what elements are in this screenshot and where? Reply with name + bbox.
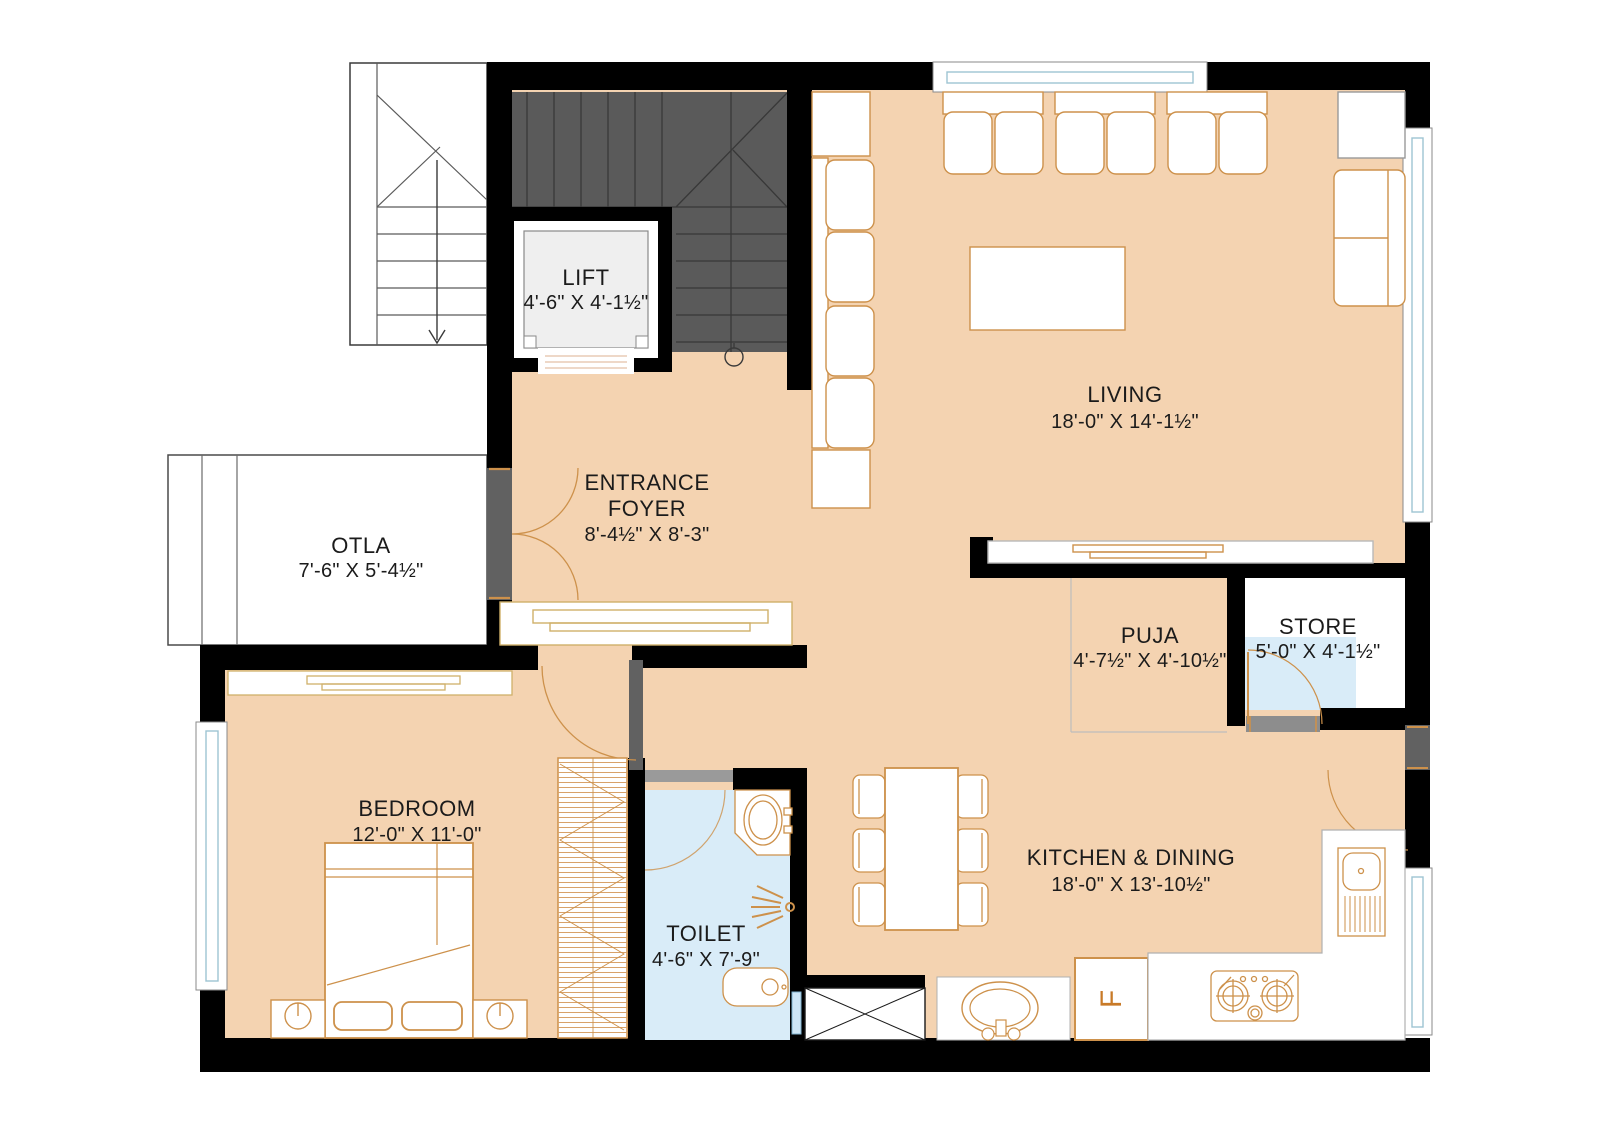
wall-toilet-left bbox=[628, 758, 645, 1072]
floor-plan: LIFT 4'-6" X 4'-1½" bbox=[0, 0, 1600, 1131]
kitchen-sink bbox=[1338, 848, 1385, 936]
store-label: STORE bbox=[1279, 614, 1357, 639]
lift-dims: 4'-6" X 4'-1½" bbox=[524, 292, 649, 314]
living-top-window bbox=[933, 62, 1207, 92]
sofa-left bbox=[812, 92, 874, 508]
exterior-staircase bbox=[350, 63, 487, 345]
wall-right-mid bbox=[1405, 520, 1430, 725]
wall-stair-living bbox=[787, 62, 812, 390]
living-right-window bbox=[1403, 128, 1432, 522]
wall-right-lower bbox=[1405, 770, 1430, 870]
otla-label: OTLA bbox=[331, 533, 390, 558]
toilet-vent-window bbox=[792, 992, 801, 1034]
kitchen-right-window bbox=[1403, 868, 1432, 1035]
living-dims: 18'-0" X 14'-1½" bbox=[1051, 411, 1199, 433]
lift-door-sill bbox=[538, 348, 634, 374]
bed bbox=[325, 843, 473, 1038]
wall-puja-store bbox=[1227, 578, 1245, 726]
corner-cabinet bbox=[1338, 92, 1405, 158]
otla-dims: 7'-6" X 5'-4½" bbox=[299, 560, 424, 582]
entrance-foyer-dims: 8'-4½" X 8'-3" bbox=[585, 524, 710, 546]
refrigerator: F bbox=[1075, 958, 1148, 1040]
wall-top-right bbox=[1205, 62, 1430, 90]
wall-foyer-bottom bbox=[632, 645, 807, 668]
duct-box bbox=[805, 988, 925, 1040]
kitchen-dining-label: KITCHEN & DINING bbox=[1027, 845, 1235, 870]
otla-porch bbox=[168, 455, 487, 645]
wash-basin-platform bbox=[937, 977, 1070, 1040]
refrigerator-label: F bbox=[1095, 990, 1128, 1008]
tv-cabinet bbox=[988, 541, 1373, 563]
coffee-table bbox=[970, 247, 1125, 330]
wall-right-corner bbox=[1405, 62, 1430, 128]
wall-living-puja bbox=[970, 563, 1405, 578]
dining-table bbox=[885, 768, 958, 930]
puja-dims: 4'-7½" X 4'-10½" bbox=[1073, 650, 1226, 672]
kitchen-dining-dims: 18'-0" X 13'-10½" bbox=[1051, 874, 1210, 896]
wall-bedroom-left-upper bbox=[200, 645, 225, 724]
store-dims: 5'-0" X 4'-1½" bbox=[1256, 641, 1381, 663]
puja-label: PUJA bbox=[1121, 623, 1179, 648]
floor-plan-drawing: LIFT 4'-6" X 4'-1½" bbox=[0, 0, 1600, 1131]
bedroom-label: BEDROOM bbox=[358, 796, 475, 821]
foyer-furniture bbox=[500, 602, 792, 645]
toilet-dims: 4'-6" X 7'-9" bbox=[652, 949, 760, 971]
lift: LIFT 4'-6" X 4'-1½" bbox=[500, 207, 672, 374]
gas-stove bbox=[1211, 971, 1298, 1021]
wc bbox=[723, 968, 788, 1006]
pillow bbox=[334, 1002, 392, 1030]
bedroom-left-window bbox=[196, 722, 227, 990]
lift-label: LIFT bbox=[562, 265, 609, 290]
wall-duct-stub bbox=[805, 975, 925, 988]
living-label: LIVING bbox=[1087, 382, 1162, 407]
toilet-label: TOILET bbox=[666, 921, 746, 946]
entrance-foyer-label-line1: ENTRANCE bbox=[584, 470, 709, 495]
entrance-foyer-label-line2: FOYER bbox=[608, 496, 686, 521]
wall-bedroom-top bbox=[202, 645, 538, 670]
wall-top-left bbox=[487, 62, 935, 90]
wall-bottom bbox=[200, 1038, 1430, 1072]
dresser bbox=[228, 671, 512, 695]
pillow bbox=[402, 1002, 462, 1030]
bedroom-dims: 12'-0" X 11'-0" bbox=[352, 824, 481, 846]
wash-basin bbox=[744, 795, 782, 845]
armchair-right bbox=[1334, 170, 1405, 306]
wardrobe bbox=[558, 758, 627, 1038]
